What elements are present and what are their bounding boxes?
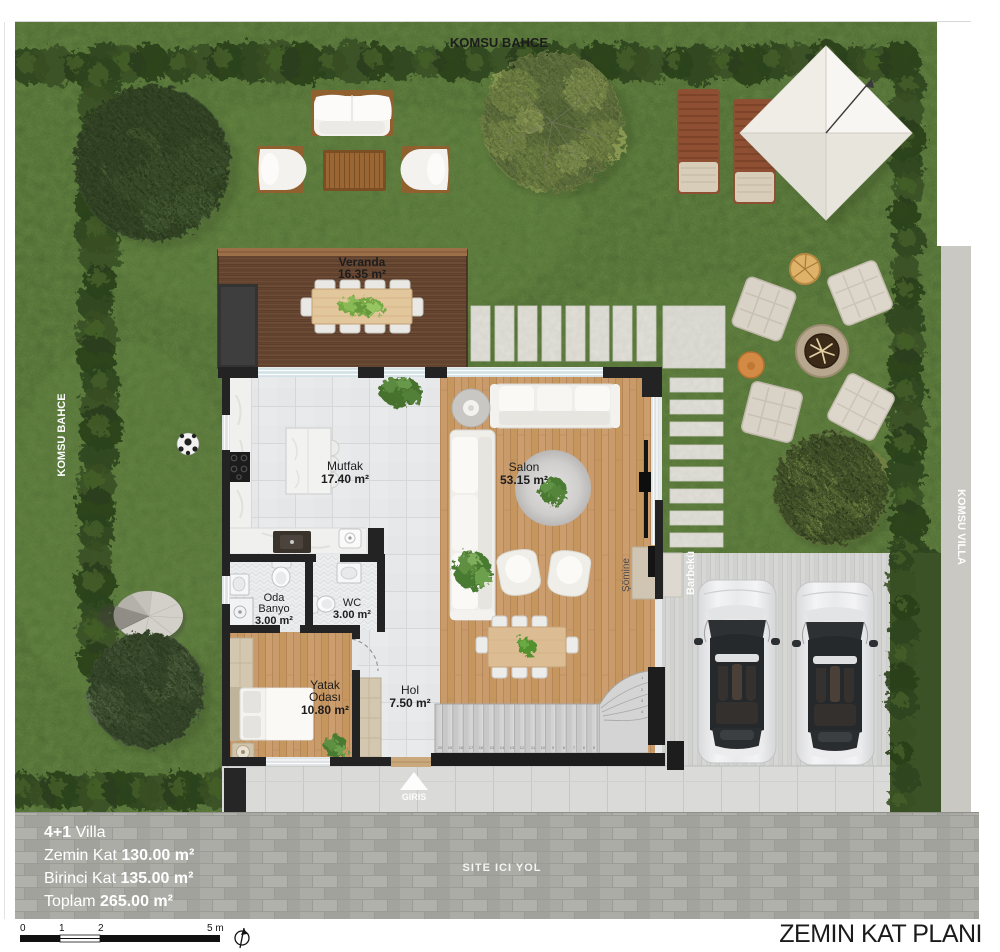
- svg-text:5 m: 5 m: [207, 923, 224, 934]
- svg-text:Hol: Hol: [401, 683, 419, 697]
- svg-text:13: 13: [510, 745, 515, 750]
- svg-text:WC: WC: [343, 597, 361, 609]
- svg-text:Barbekü: Barbekü: [685, 551, 697, 595]
- svg-text:17.40 m²: 17.40 m²: [321, 472, 369, 486]
- svg-text:Zemin Kat 130.00 m²: Zemin Kat 130.00 m²: [44, 847, 194, 864]
- svg-text:17: 17: [469, 745, 474, 750]
- svg-text:Salon: Salon: [509, 460, 540, 474]
- svg-text:Banyo: Banyo: [258, 603, 289, 615]
- svg-text:12: 12: [520, 745, 525, 750]
- svg-text:18: 18: [459, 745, 464, 750]
- svg-text:19: 19: [448, 745, 453, 750]
- svg-text:ZEMIN KAT PLANI: ZEMIN KAT PLANI: [779, 920, 982, 948]
- svg-text:1: 1: [59, 923, 65, 934]
- svg-text:20: 20: [438, 745, 443, 750]
- svg-text:KOMSU VILLA: KOMSU VILLA: [955, 489, 967, 565]
- svg-text:15: 15: [490, 745, 495, 750]
- svg-text:16: 16: [479, 745, 484, 750]
- svg-text:7.50 m²: 7.50 m²: [389, 696, 430, 710]
- svg-text:Şömine: Şömine: [621, 558, 632, 592]
- svg-text:16.35 m²: 16.35 m²: [338, 267, 386, 281]
- svg-text:SITE ICI YOL: SITE ICI YOL: [462, 862, 541, 874]
- svg-text:10.80 m²: 10.80 m²: [301, 703, 349, 717]
- svg-text:KOMSU BAHCE: KOMSU BAHCE: [56, 393, 68, 476]
- svg-text:KOMSU BAHCE: KOMSU BAHCE: [450, 35, 549, 50]
- svg-text:3.00 m²: 3.00 m²: [333, 609, 371, 621]
- svg-text:2: 2: [98, 923, 104, 934]
- svg-text:53.15 m²: 53.15 m²: [500, 473, 548, 487]
- svg-text:Mutfak: Mutfak: [327, 459, 364, 473]
- svg-text:10: 10: [541, 745, 546, 750]
- svg-text:14: 14: [500, 745, 505, 750]
- svg-text:GIRIS: GIRIS: [402, 792, 427, 802]
- svg-text:Odası: Odası: [309, 690, 341, 704]
- svg-text:Toplam 265.00 m²: Toplam 265.00 m²: [44, 893, 173, 910]
- svg-text:Birinci Kat 135.00 m²: Birinci Kat 135.00 m²: [44, 870, 193, 887]
- svg-text:4+1 Villa: 4+1 Villa: [44, 824, 106, 841]
- svg-text:0: 0: [20, 923, 26, 934]
